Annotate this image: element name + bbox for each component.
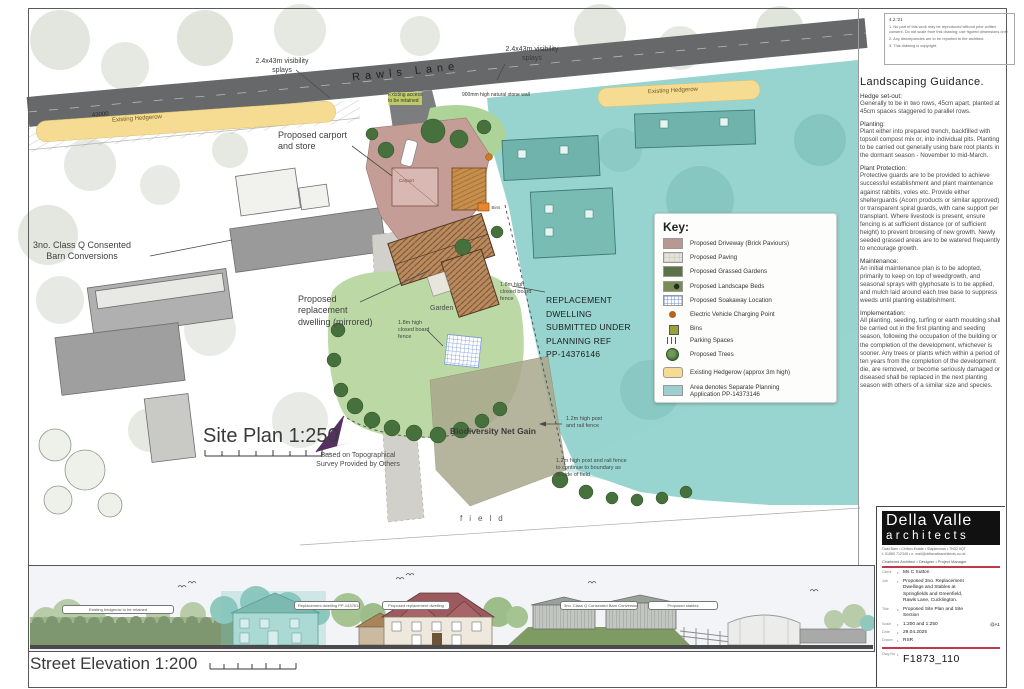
field-label: Job — [882, 579, 897, 605]
notes-header: 4.2.'21 — [889, 17, 1010, 22]
field-label: Title — [882, 607, 897, 620]
red-rule — [882, 647, 1000, 649]
note-line: 2. Any discrepancies are to be reported … — [889, 36, 1010, 41]
guidance-section-body: Plant either into prepared trench, backf… — [860, 128, 1006, 160]
key-item-label: Electric Vehicle Charging Point — [690, 311, 775, 318]
site-plan-title: Site Plan 1:250 — [203, 424, 339, 449]
key-item-label: Area denotes Separate Planning Applicati… — [690, 384, 779, 398]
field-label: Client — [882, 570, 897, 576]
field-label: field — [460, 514, 510, 524]
street-elevation-title: Street Elevation 1:200 — [30, 653, 197, 674]
post-rail-fence-continue-label: 1.2m high post and rail fence to continu… — [556, 458, 651, 479]
carport-label: Proposed carport and store — [278, 130, 373, 153]
visibility-splay-left-label: 2.4x43m visibility splays — [238, 58, 326, 76]
guidance-section-title: Hedge set-out: — [860, 93, 1006, 100]
bins-label: Bins — [492, 205, 501, 211]
stone-wall-label: 900mm high natural stone wall — [462, 92, 584, 98]
bins-icon — [663, 323, 683, 334]
guidance-section-body: All planting, seeding, turfing or earth … — [860, 317, 1006, 390]
key-item-label: Proposed Grassed Gardens — [690, 268, 767, 275]
dwg-no-label: Dwg No — [882, 652, 897, 666]
elevation-label: Proposed replacement dwelling — [382, 601, 450, 610]
existing-access-label: Existing access to be retained — [388, 92, 422, 105]
dimension-43000: 43000 — [92, 111, 109, 120]
post-rail-fence-label: 1.2m high post and rail fence — [566, 416, 632, 430]
key-item-label: Proposed Trees — [690, 351, 734, 358]
driveway-swatch — [663, 238, 683, 249]
field-label: Drawn — [882, 638, 897, 644]
key-item-label: Proposed Landscape Beds — [690, 283, 764, 290]
red-rule — [882, 566, 1000, 568]
landscape-beds-swatch — [663, 281, 683, 292]
tree-icon — [666, 348, 679, 361]
date-value: 29.04.2025 — [903, 630, 927, 636]
elevation-label: Replacement dwelling PP-14376146 — [294, 601, 360, 610]
key-legend: Key: Proposed Driveway (Brick Paviours) … — [654, 213, 837, 403]
parking-icon — [667, 337, 679, 344]
general-notes: 4.2.'21 1. No part of this work may be r… — [884, 13, 1015, 65]
guidance-section-body: Generally to be in two rows, 45cm apart,… — [860, 100, 1006, 116]
firm-name: Della Valle — [886, 513, 996, 530]
sheet-size: @A1 — [990, 622, 1000, 628]
landscaping-guidance: Landscaping Guidance. Hedge set-out:Gene… — [860, 76, 1006, 395]
guidance-heading: Landscaping Guidance. — [860, 76, 1006, 88]
guidance-section-title: Implementation: — [860, 310, 1006, 317]
job-value: Proposed 3no. Replacement Dwellings and … — [903, 579, 964, 605]
note-line: 3. This drawing is copyright. — [889, 43, 1010, 48]
elevation-label: Existing hedgerow to be retained — [62, 605, 174, 614]
carport-tiny-label: Carport — [399, 178, 414, 184]
drawing-sheet: 2.4x43m visibility splays 2.4x43m visibi… — [0, 0, 1024, 689]
guidance-section-title: Planting: — [860, 121, 1006, 128]
garden-label: Garden — [430, 305, 453, 314]
firm-type: architects — [886, 530, 996, 542]
survey-note: Based on Topographical Survey Provided b… — [294, 452, 422, 470]
guidance-section-body: An initial maintenance plan is to be ado… — [860, 265, 1006, 305]
key-title: Key: — [663, 220, 828, 234]
key-item-label: Existing Hedgerow (approx 3m high) — [690, 369, 790, 376]
key-item-label: Parking Spaces — [690, 337, 733, 344]
elevation-label: 3no. Class Q Consented Barn Conversions — [560, 601, 638, 610]
guidance-section-title: Maintenance: — [860, 258, 1006, 265]
elevation-scale-bar — [208, 660, 298, 672]
planning-ref-note: REPLACEMENT DWELLING SUBMITTED UNDER PLA… — [546, 294, 661, 362]
biodiversity-label: Biodiversity Net Gain — [450, 426, 562, 437]
hedgerow-swatch — [663, 367, 683, 378]
drawn-value: RSR — [903, 638, 913, 644]
grass-swatch — [663, 266, 683, 277]
field-label: Scale — [882, 622, 897, 628]
field-label: Date — [882, 630, 897, 636]
separate-application-swatch — [663, 385, 683, 396]
paving-swatch — [663, 252, 683, 263]
closed-board-fence-label-1: 1.8m high closed board fence — [398, 320, 452, 341]
sidebar-divider — [858, 8, 859, 565]
soakaway-swatch — [663, 295, 683, 306]
dwg-no-value: F1873_110 — [903, 652, 960, 666]
title-block: Della Valle architects Oast Barn • Chilt… — [876, 506, 1005, 687]
replacement-dwelling-label: Proposed replacement dwelling (mirrored) — [298, 294, 390, 328]
firm-contact: t. 01580 712345 • e. mail@dellavallearch… — [882, 552, 1000, 557]
barn-conversions-label: 3no. Class Q Consented Barn Conversions — [6, 240, 158, 263]
title-value: Proposed Site Plan and Site Section — [903, 607, 963, 620]
key-item-label: Proposed Soakaway Location — [690, 297, 772, 304]
guidance-section-title: Plant Protection: — [860, 165, 1006, 172]
key-item-label: Proposed Driveway (Brick Paviours) — [690, 240, 789, 247]
key-item-label: Bins — [690, 325, 702, 332]
guidance-section-body: Protective guards are to be provided to … — [860, 172, 1006, 253]
firm-roles: Chartered Architect • Designer • Project… — [882, 559, 1000, 564]
visibility-splay-right-label: 2.4x43m visibility splays — [488, 46, 576, 64]
note-line: 1. No part of this work may be reproduce… — [889, 24, 1010, 34]
scale-value: 1:200 and 1:250 — [903, 622, 938, 628]
ev-point-icon — [663, 309, 683, 320]
elevation-label: Proposed stables — [648, 601, 718, 610]
firm-logo: Della Valle architects — [882, 511, 1000, 545]
key-item-label: Proposed Paving — [690, 254, 737, 261]
client-value: Ms C Sutton — [903, 570, 929, 576]
